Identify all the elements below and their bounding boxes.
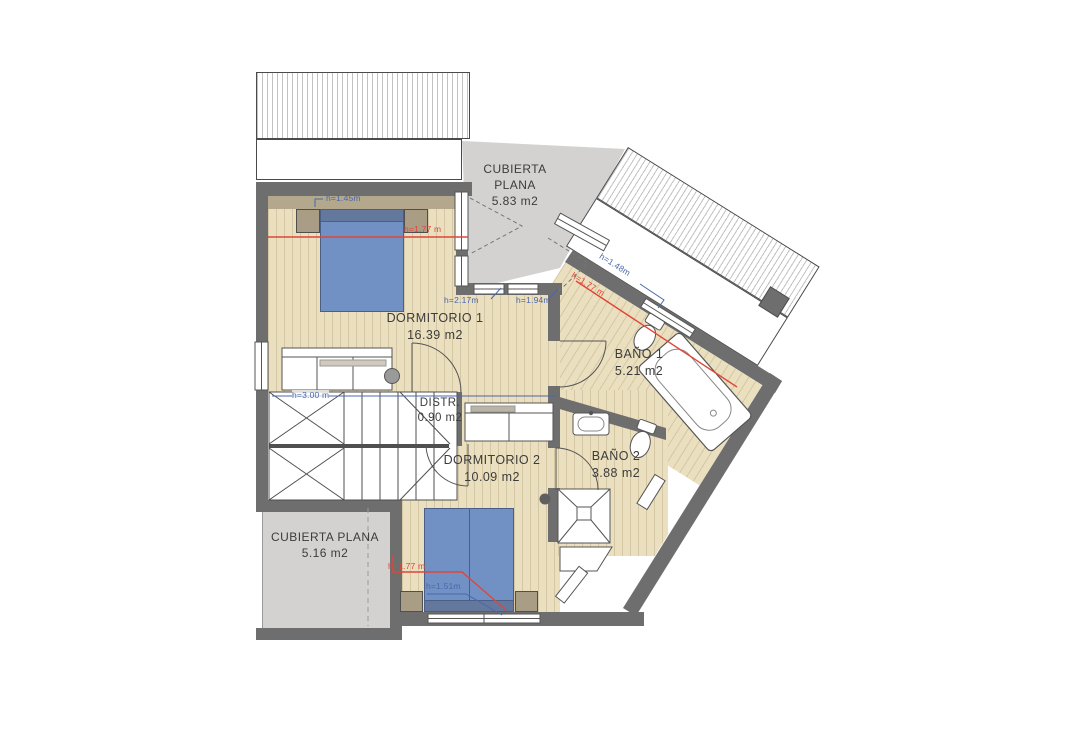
room-label-bano-2: BAÑO 2 3.88 m2 [576, 448, 656, 481]
terrace-name-line1: CUBIERTA [455, 162, 575, 178]
annotation-lines [0, 0, 1077, 731]
room-name: BAÑO 1 [599, 346, 679, 363]
terrace-top-label: CUBIERTA PLANA 5.83 m2 [455, 162, 575, 209]
terrace-name: CUBIERTA PLANA [258, 530, 392, 546]
room-name: DISTR. [405, 396, 475, 411]
annotation-h151: h=1.51m [426, 581, 461, 591]
annotation-h177-dorm2: h=1.77 m [388, 561, 425, 571]
terrace-name-line2: PLANA [455, 178, 575, 194]
room-label-distribuidor: DISTR. 0.90 m2 [405, 396, 475, 426]
annotation-h217: h=2.17m [444, 295, 479, 305]
room-area: 3.88 m2 [576, 465, 656, 482]
room-label-dormitorio-2: DORMITORIO 2 10.09 m2 [422, 452, 562, 485]
floor-plan: DORMITORIO 1 16.39 m2 DISTR. 0.90 m2 DOR… [0, 0, 1077, 731]
room-area: 10.09 m2 [422, 469, 562, 486]
room-name: DORMITORIO 1 [365, 310, 505, 327]
terrace-area: 5.16 m2 [258, 546, 392, 562]
terrace-area: 5.83 m2 [455, 194, 575, 210]
annotation-h145: h=1.45m [326, 193, 361, 203]
room-area: 5.21 m2 [599, 363, 679, 380]
room-label-bano-1: BAÑO 1 5.21 m2 [599, 346, 679, 379]
room-name: BAÑO 2 [576, 448, 656, 465]
terrace-left-label: CUBIERTA PLANA 5.16 m2 [258, 530, 392, 562]
room-name: DORMITORIO 2 [422, 452, 562, 469]
room-area: 16.39 m2 [365, 327, 505, 344]
annotation-h300: h=3.00 m [292, 390, 329, 400]
annotation-h194: h=1.94m [516, 295, 551, 305]
annotation-h177-dorm1: h=1.77 m [404, 224, 441, 234]
room-area: 0.90 m2 [405, 411, 475, 426]
room-label-dormitorio-1: DORMITORIO 1 16.39 m2 [365, 310, 505, 343]
